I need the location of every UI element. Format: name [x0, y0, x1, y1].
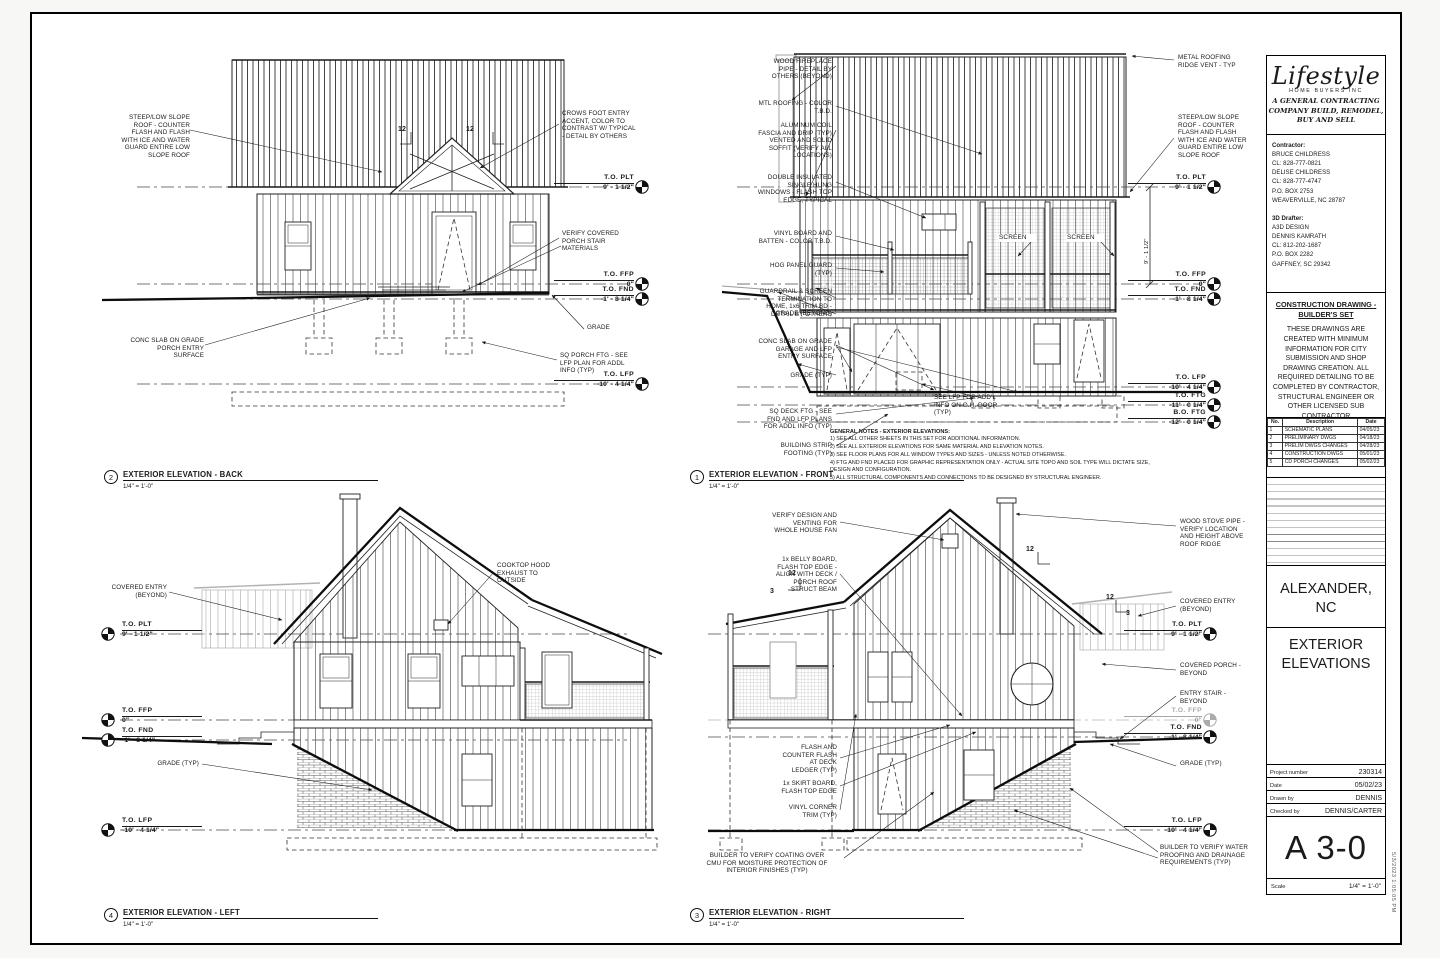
- construction-notice-block: CONSTRUCTION DRAWING - BUILDER'S SET THE…: [1266, 292, 1386, 418]
- note-grade-typ: GRADE (TYP): [127, 760, 199, 768]
- porch-footings: [232, 300, 564, 406]
- note-vinyl-corner: VINYL CORNERTRIM (TYP): [742, 804, 837, 819]
- window: [510, 222, 536, 270]
- note-cmu-coating: BUILDER TO VERIFY COATING OVERCMU FOR MO…: [692, 852, 842, 875]
- small-window: [922, 214, 956, 230]
- note-porch-stair: VERIFY COVEREDPORCH STAIRMATERIALS: [562, 230, 662, 253]
- view-title-text: EXTERIOR ELEVATION - RIGHT: [709, 908, 964, 919]
- sheet-number: A 3-0: [1266, 816, 1386, 880]
- panel-elevation-front: GENERAL NOTES - EXTERIOR ELEVATIONS: 1) …: [682, 42, 1257, 487]
- note-windows: DOUBLE INSULATEDSINGLE HUNGWINDOWS - FLA…: [722, 174, 832, 204]
- deck-band: [728, 720, 1074, 728]
- contractor-line: DELISE CHILDRESS: [1272, 168, 1380, 177]
- level-to-lfp: T.O. LFP-10' - 4 1/4": [122, 817, 202, 835]
- view-title-left: 4 EXTERIOR ELEVATION - LEFT1/4" = 1'-0": [104, 908, 378, 928]
- general-notes-title: GENERAL NOTES - EXTERIOR ELEVATIONS:: [830, 428, 1165, 436]
- note-mtl-roofing: MTL ROOFING - COLORT.B.D.: [722, 100, 832, 115]
- contractor-line: BRUCE CHILDRESS: [1272, 150, 1380, 159]
- back-elevation-drawing: [42, 42, 682, 487]
- view-number: 4: [104, 908, 118, 922]
- view-scale: 1/4" = 1'-0": [709, 483, 964, 490]
- slope-12: 12: [466, 126, 486, 134]
- level-to-fnd: T.O. FND-1' - 8 1/4": [1124, 724, 1202, 742]
- revision-row: 3PRELIM DWGS CHANGES04/28/23: [1268, 442, 1385, 450]
- slope-12: 12: [788, 570, 806, 578]
- note-cooktop-hood: COOKTOP HOODEXHAUST TOOUTSIDE: [497, 562, 592, 585]
- drafter-heading: 3D Drafter:: [1272, 214, 1380, 223]
- plot-stamp: 5/3/2023 1:05:05 PM: [1390, 852, 1396, 913]
- triple-window: [462, 656, 514, 686]
- note-skirt-board: 1x SKIRT BOARD,FLASH TOP EDGE: [742, 780, 837, 795]
- field-row: Drawn byDENNIS: [1267, 790, 1385, 803]
- level-to-fnd: T.O. FND-1' - 8 1/4": [554, 286, 634, 304]
- level-markers: [1208, 181, 1220, 428]
- level-to-plt: T.O. PLT9' - 1 1/2": [554, 174, 634, 192]
- cooktop-vent: [434, 620, 448, 630]
- level-to-ffp: T.O. FFP0": [1124, 707, 1202, 725]
- drafter-line: GAFFNEY, SC 29342: [1272, 260, 1380, 269]
- note-ridge-vent: METAL ROOFINGRIDGE VENT - TYP: [1178, 54, 1254, 69]
- metal-roof: [228, 60, 568, 187]
- view-scale: 1/4" = 1'-0": [123, 921, 378, 928]
- note-grade-typ: GRADE (TYP): [1180, 760, 1258, 768]
- slope-12: 12: [1106, 594, 1124, 602]
- basement-window: [462, 754, 492, 806]
- level-to-fnd: T.O. FND-1' - 8 1/4": [1128, 286, 1206, 304]
- contractor-line: WEAVERVILLE, NC 28787: [1272, 196, 1380, 205]
- note-covered-entry: COVERED ENTRY(BEYOND): [62, 584, 167, 599]
- rev-col-no: No.: [1268, 418, 1283, 426]
- note-grade-typ: GRADE (TYP): [722, 372, 832, 380]
- drafter-line: DENNIS KAMRATH: [1272, 232, 1380, 241]
- contractor-heading: Contractor:: [1272, 141, 1380, 150]
- label-screen: SCREEN: [998, 234, 1036, 242]
- company-logo-block: Lifestyle HOME BUYERS INC A GENERAL CONT…: [1266, 55, 1386, 135]
- note-wood-stove-pipe: WOOD STOVE PIPE -VERIFY LOCATIONAND HEIG…: [1180, 518, 1258, 548]
- revision-row: 1SCHEMATIC PLANS04/05/23: [1268, 426, 1385, 434]
- label-screen: SCREEN: [1066, 234, 1104, 242]
- note-strip-footing: BUILDING STRIPFOOTING (TYP): [722, 442, 832, 457]
- slope-12: 12: [386, 126, 406, 134]
- note-grade-beyond: GRADE (BEYOND): [722, 310, 832, 318]
- note-vinyl-bb: VINYL BOARD ANDBATTEN - COLOR T.B.D.: [722, 230, 832, 245]
- note-fireplace-pipe: WOOD FIREPLACEPIPE - DETAIL BYOTHERS (BE…: [722, 58, 832, 81]
- view-scale: 1/4" = 1'-0": [709, 921, 964, 928]
- view-scale: 1/4" = 1'-0": [123, 483, 378, 490]
- dim-9-1-1-2: 9' - 1 1/2": [1144, 224, 1151, 264]
- revision-table: No. Description Date 1SCHEMATIC PLANS04/…: [1266, 417, 1386, 479]
- level-markers: [102, 628, 114, 836]
- field-row: Project number230314: [1267, 764, 1385, 777]
- drawing-sheet: 2 EXTERIOR ELEVATION - BACK1/4" = 1'-0" …: [30, 12, 1402, 945]
- sheet-title: EXTERIOR ELEVATIONS: [1267, 628, 1385, 682]
- general-note: 3) SEE FLOOR PLANS FOR ALL WINDOW TYPES …: [830, 452, 1165, 460]
- notice-body: THESE DRAWINGS ARE CREATED WITH MINIMUM …: [1271, 325, 1381, 422]
- basement-window: [964, 750, 994, 800]
- view-title-back: 2 EXTERIOR ELEVATION - BACK1/4" = 1'-0": [104, 470, 378, 490]
- note-covered-entry: COVERED ENTRY(BEYOND): [1180, 598, 1258, 613]
- revision-row: 5CD PORCH CHANGES05/02/23: [1268, 458, 1385, 466]
- slope-3: 3: [770, 588, 788, 596]
- slope-12: 12: [1026, 546, 1044, 554]
- view-title-text: EXTERIOR ELEVATION - LEFT: [123, 908, 378, 919]
- lfp-door: [1074, 320, 1104, 382]
- project-location: ALEXANDER, NC: [1267, 566, 1385, 627]
- field-row: Checked byDENNIS/CARTER: [1267, 803, 1385, 816]
- general-note: 2) SEE ALL EXTERIOR ELEVATIONS FOR SAME …: [830, 444, 1165, 452]
- note-covered-porch: COVERED PORCH -BEYOND: [1180, 662, 1258, 677]
- view-number: 2: [104, 470, 118, 484]
- field-row: Date05/02/23: [1267, 777, 1385, 790]
- window: [285, 222, 311, 270]
- note-entry-stair: ENTRY STAIR -BEYOND: [1180, 690, 1258, 705]
- entry-door: [432, 212, 476, 294]
- notice-title: CONSTRUCTION DRAWING - BUILDER'S SET: [1271, 300, 1381, 319]
- view-number: 3: [690, 908, 704, 922]
- gable-vent: [942, 534, 958, 548]
- contractor-line: CL: 828-777-4747: [1272, 177, 1380, 186]
- level-to-lfp: T.O. LFP-10' - 4 1/4": [1128, 374, 1206, 392]
- project-fields: Project number230314 Date05/02/23 Drawn …: [1267, 764, 1385, 816]
- screened-porch: [520, 648, 652, 720]
- level-to-fnd: T.O. FND-1' - 8 1/4": [122, 727, 202, 745]
- basement-door: [878, 754, 906, 814]
- note-grade: GRADE: [587, 324, 647, 332]
- note-steep-low-slope-roof: STEEP/LOW SLOPEROOF - COUNTERFLASH AND F…: [62, 114, 190, 159]
- note-alum-coil: ALUMINUM COILFASCIA AND DRIP (TYP)VENTED…: [722, 122, 832, 160]
- revision-row: 4CONSTRUCTION DWGS05/01/23: [1268, 450, 1385, 458]
- screened-porch: [980, 202, 1115, 312]
- level-to-lfp: T.O. LFP-10' - 4 1/4": [554, 371, 634, 389]
- view-title-front: 1 EXTERIOR ELEVATION - FRONT1/4" = 1'-0": [690, 470, 964, 490]
- panel-elevation-back: 2 EXTERIOR ELEVATION - BACK1/4" = 1'-0" …: [42, 42, 682, 487]
- level-to-plt: T.O. PLT9' - 1 1/2": [1124, 621, 1202, 639]
- note-crows-foot: CROWS FOOT ENTRYACCENT, COLOR TOCONTRAST…: [562, 110, 674, 140]
- contractor-line: CL: 828-777-0821: [1272, 159, 1380, 168]
- note-conc-slab: CONC SLAB ON GRADEPORCH ENTRYSURFACE: [72, 337, 204, 360]
- scale-value: 1/4" = 1'-0": [1349, 883, 1381, 890]
- view-title-text: EXTERIOR ELEVATION - FRONT: [709, 470, 964, 481]
- rev-col-date: Date: [1358, 418, 1385, 426]
- level-markers: [1204, 628, 1216, 836]
- note-sq-deck-ftg: SQ DECK FTG - SEEFND AND LFP PLANSFOR AD…: [722, 408, 832, 431]
- panel-elevation-left: 4 EXTERIOR ELEVATION - LEFT1/4" = 1'-0" …: [42, 492, 682, 924]
- level-to-lfp: T.O. LFP-10' - 4 1/4": [1124, 817, 1202, 835]
- contractor-line: P.O. BOX 2753: [1272, 187, 1380, 196]
- view-number: 1: [690, 470, 704, 484]
- drafter-line: CL: 812-202-1687: [1272, 241, 1380, 250]
- level-to-plt: T.O. PLT9' - 1 1/2": [122, 621, 202, 639]
- level-bo-ftg: B.O. FTG-12' - 0 1/4": [1128, 409, 1206, 427]
- drafter-line: A3D DESIGN: [1272, 223, 1380, 232]
- scale-label: Scale: [1271, 884, 1286, 890]
- note-flash-ledger: FLASH ANDCOUNTER FLASHAT DECKLEDGER (TYP…: [742, 744, 837, 774]
- note-see-lfp-door: SEE LFP FOR ADD'LINFO ON O.H. DOOR(TYP): [934, 394, 1022, 417]
- note-whole-house-fan: VERIFY DESIGN ANDVENTING FORWHOLE HOUSE …: [717, 512, 837, 535]
- brand-name: Lifestyle: [1267, 62, 1385, 90]
- note-hog-panel: HOG PANEL GUARD(TYP): [722, 262, 832, 277]
- project-block: ALEXANDER, NC EXTERIOR ELEVATIONS Projec…: [1266, 565, 1386, 817]
- slope-3: 3: [1126, 610, 1144, 618]
- general-note: 1) SEE ALL OTHER SHEETS IN THIS SET FOR …: [830, 436, 1165, 444]
- window: [408, 654, 440, 708]
- revision-row: 2PRELIMINARY DWGS04/18/23: [1268, 434, 1385, 442]
- brand-tagline: A GENERAL CONTRACTING COMPANY BUILD, REM…: [1267, 97, 1385, 125]
- gable-wall: [294, 522, 518, 642]
- panel-elevation-right: 3 EXTERIOR ELEVATION - RIGHT1/4" = 1'-0"…: [682, 492, 1257, 924]
- window: [1034, 324, 1060, 364]
- contractor-block: Contractor: BRUCE CHILDRESS CL: 828-777-…: [1266, 134, 1386, 294]
- note-waterproofing: BUILDER TO VERIFY WATERPROOFING AND DRAI…: [1160, 844, 1272, 867]
- note-conc-slab-garage: CONC SLAB ON GRADEGARAGE AND LFPENTRY SU…: [722, 338, 832, 361]
- drafter-line: P.O. BOX 2282: [1272, 250, 1380, 259]
- window: [320, 654, 352, 708]
- view-title-text: EXTERIOR ELEVATION - BACK: [123, 470, 378, 481]
- round-window: [1011, 663, 1053, 705]
- level-to-ftg: T.O. FTG-11' - 0 1/4": [1128, 392, 1206, 410]
- scale-row: Scale 1/4" = 1'-0": [1266, 878, 1386, 895]
- metal-roof: [790, 54, 1130, 197]
- view-title-right: 3 EXTERIOR ELEVATION - RIGHT1/4" = 1'-0": [690, 908, 964, 928]
- title-block: Lifestyle HOME BUYERS INC A GENERAL CONT…: [1266, 57, 1386, 925]
- blank-revision-rows: [1266, 477, 1386, 567]
- note-steep-low-slope-roof: STEEP/LOW SLOPEROOF - COUNTERFLASH AND F…: [1178, 114, 1254, 159]
- level-to-plt: T.O. PLT9' - 1 1/2": [1128, 174, 1206, 192]
- rev-col-desc: Description: [1283, 418, 1358, 426]
- level-to-ffp: T.O. FFP0": [122, 707, 202, 725]
